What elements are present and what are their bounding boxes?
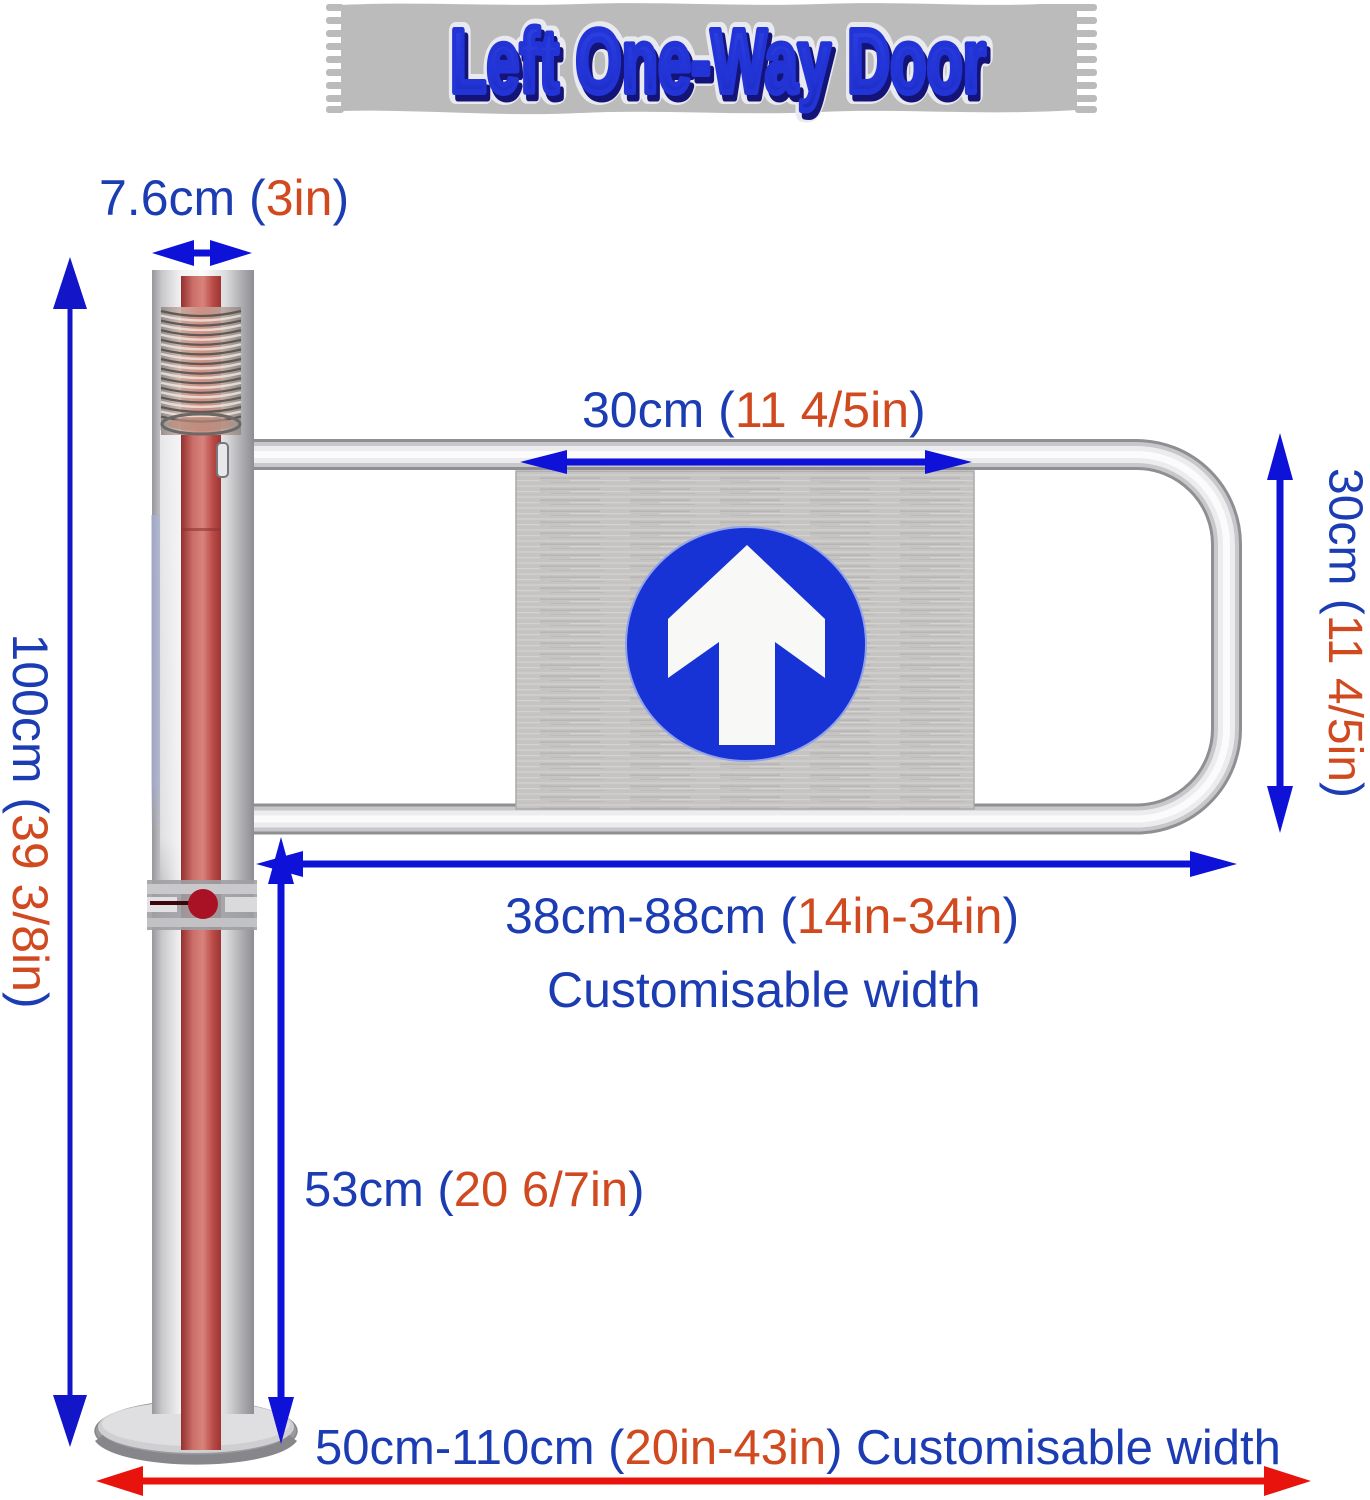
- svg-text:30cm (11 4/5in): 30cm (11 4/5in): [1318, 468, 1370, 798]
- svg-text:53cm (20 6/7in): 53cm (20 6/7in): [304, 1163, 644, 1217]
- svg-text:100cm (39 3/8in): 100cm (39 3/8in): [2, 633, 58, 1008]
- svg-text:7.6cm (3in): 7.6cm (3in): [99, 170, 349, 226]
- svg-text:Customisable width: Customisable width: [547, 962, 981, 1018]
- svg-text:38cm-88cm (14in-34in): 38cm-88cm (14in-34in): [505, 888, 1019, 944]
- svg-text:Left One-Way Door: Left One-Way Door: [450, 12, 986, 112]
- svg-text:50cm-110cm (20in-43in) Customi: 50cm-110cm (20in-43in) Customisable widt…: [315, 1421, 1281, 1475]
- svg-text:30cm (11 4/5in): 30cm (11 4/5in): [582, 382, 926, 438]
